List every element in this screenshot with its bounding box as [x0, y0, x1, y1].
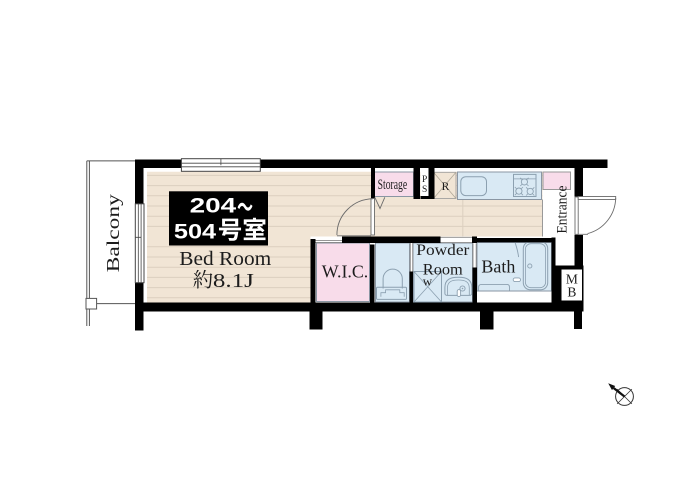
- svg-text:Storage: Storage: [378, 177, 408, 193]
- svg-text:8.1J: 8.1J: [213, 270, 254, 292]
- svg-text:Entrance: Entrance: [555, 185, 571, 233]
- svg-text:Room: Room: [423, 261, 463, 278]
- svg-text:Bath: Bath: [481, 257, 515, 277]
- svg-text:504: 504: [174, 220, 216, 244]
- svg-text:Balcony: Balcony: [103, 194, 123, 272]
- svg-text:Bed Room: Bed Room: [179, 249, 271, 270]
- svg-text:S: S: [422, 185, 427, 195]
- svg-text:B: B: [567, 285, 576, 300]
- svg-text:P: P: [422, 175, 427, 185]
- svg-text:Powder: Powder: [416, 242, 470, 259]
- svg-text:R: R: [442, 181, 450, 193]
- svg-text:204: 204: [190, 194, 237, 218]
- svg-text:W.I.C.: W.I.C.: [322, 261, 369, 281]
